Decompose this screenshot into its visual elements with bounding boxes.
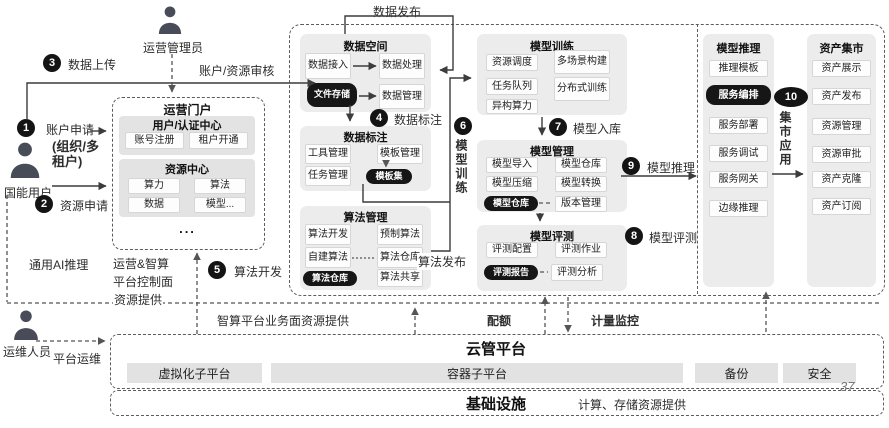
resource-item-compute: 算力: [128, 178, 180, 194]
step-10-label: 集市应用: [777, 111, 794, 175]
step-4-badge: 4: [370, 109, 388, 127]
service-debug-node: 服务调试: [709, 145, 768, 162]
step-1-note-line2: 租户): [52, 151, 82, 170]
platform-ops-label: 平台运维: [53, 350, 101, 367]
admin-person-icon: [156, 3, 184, 37]
backup-module: 备份: [695, 363, 778, 383]
step-7-badge: 7: [549, 118, 567, 136]
label-tool-node: 工具管理: [305, 144, 351, 164]
model-warehouse-node: 模型仓库: [484, 196, 538, 211]
platform-divider: [697, 24, 698, 294]
service-gateway-node: 服务网关: [709, 171, 768, 188]
asset-market-title: 资产集市: [807, 40, 876, 56]
algo-publish-label: 算法发布: [417, 253, 467, 270]
step-8-label: 模型评测: [649, 229, 697, 246]
model-repo-node: 模型仓库: [555, 157, 607, 173]
portal-more-ellipsis: ...: [112, 221, 263, 236]
algo-share-node: 算法共享: [377, 269, 423, 287]
asset-display-node: 资产展示: [812, 60, 871, 77]
eval-report-node: 评测报告: [484, 265, 538, 280]
asset-clone-node: 资产克隆: [812, 171, 871, 188]
infrastructure-note: 计算、存储资源提供: [578, 396, 686, 413]
step-9-badge: 9: [622, 157, 640, 175]
train-queue-node: 任务队列: [486, 78, 538, 95]
asset-publish-node: 资产发布: [812, 88, 871, 105]
eval-job-node: 评测作业: [555, 242, 607, 258]
step-1-badge: 1: [17, 119, 35, 137]
model-infer-title: 模型推理: [703, 40, 774, 56]
resource-item-model: 模型...: [194, 197, 246, 213]
account-review-label: 账户/资源审核: [199, 62, 274, 79]
user-person-icon: [7, 139, 43, 181]
business-plane-label: 智算平台业务面资源提供: [217, 312, 349, 329]
resource-item-data: 数据: [128, 197, 180, 213]
model-convert-node: 模型转换: [555, 176, 607, 192]
asset-resource-mgmt-node: 资源管理: [812, 118, 871, 135]
step-5-badge: 5: [208, 261, 226, 279]
step-4-label: 数据标注: [394, 111, 442, 128]
edge-infer-node: 边缘推理: [709, 200, 768, 217]
auth-item-tenant: 租户开通: [189, 132, 248, 149]
label-template-node: 模板管理: [377, 144, 423, 164]
metering-label: 计量监控: [591, 312, 639, 329]
virtualization-subplatform: 虚拟化子平台: [127, 363, 262, 383]
algo-mgmt-title: 算法管理: [300, 209, 431, 225]
diagram-canvas: 运营门户 用户/认证中心 账号注册 租户开通 资源中心 算力 算法 数据 模型.…: [0, 0, 889, 428]
control-plane-label-line1: 运营&智算: [113, 255, 169, 272]
step-6-label: 模型训练: [453, 139, 470, 201]
data-manage-node: 数据管理: [379, 84, 425, 109]
step-3-label: 数据上传: [68, 56, 116, 73]
data-space-title: 数据空间: [300, 38, 431, 54]
eval-config-node: 评测配置: [486, 242, 538, 258]
train-schedule-node: 资源调度: [486, 54, 538, 71]
model-version-node: 版本管理: [555, 196, 607, 212]
label-task-node: 任务管理: [305, 166, 351, 186]
ops-person-icon: [11, 308, 41, 342]
algo-selfbuilt-node: 自建算法: [305, 247, 351, 268]
algo-prebuilt-node: 预制算法: [377, 224, 423, 245]
control-plane-label-line3: 资源提供: [113, 291, 163, 308]
file-storage-node: 文件存储: [307, 83, 357, 107]
step-2-label: 资源申请: [60, 197, 108, 214]
algo-warehouse-node: 算法仓库: [303, 271, 357, 286]
train-hetero-node: 异构算力: [486, 99, 538, 114]
asset-subscribe-node: 资产订阅: [812, 198, 871, 215]
quota-label: 配额: [487, 312, 511, 329]
auth-item-register: 账号注册: [125, 132, 184, 149]
data-process-node: 数据处理: [379, 53, 425, 79]
model-compress-node: 模型压缩: [486, 176, 538, 192]
general-ai-inference-label: 通用AI推理: [29, 256, 88, 273]
data-publish-label: 数据发布: [373, 3, 421, 20]
model-import-node: 模型导入: [486, 157, 538, 173]
step-9-label: 模型推理: [647, 159, 695, 176]
cloud-platform-title: 云管平台: [110, 338, 882, 359]
service-deploy-node: 服务部署: [709, 117, 768, 134]
service-orchestration-node: 服务编排: [706, 85, 771, 105]
ops-label: 运维人员: [0, 343, 54, 360]
data-label-title: 数据标注: [300, 129, 431, 145]
resource-item-algorithm: 算法: [194, 178, 246, 194]
step-2-badge: 2: [35, 195, 53, 213]
step-3-badge: 3: [43, 54, 61, 72]
step-6-badge: 6: [454, 117, 472, 135]
data-access-node: 数据接入: [305, 53, 351, 79]
train-multiscene-node: 多场景构建: [554, 50, 610, 74]
infrastructure-title: 基础设施: [110, 393, 882, 414]
page-number: 37: [840, 379, 854, 394]
auth-center-title: 用户/认证中心: [119, 117, 255, 133]
template-set-node: 模板集: [366, 169, 412, 184]
admin-label: 运营管理员: [136, 39, 210, 56]
control-plane-label-line2: 平台控制面: [113, 273, 173, 290]
step-7-label: 模型入库: [573, 120, 621, 137]
algo-dev-node: 算法开发: [305, 224, 351, 245]
step-10-badge: 10: [774, 87, 808, 107]
asset-approval-node: 资源审批: [812, 146, 871, 163]
step-5-label: 算法开发: [234, 263, 282, 280]
resource-center-title: 资源中心: [119, 161, 255, 177]
infer-template-node: 推理模板: [709, 60, 768, 77]
step-8-badge: 8: [625, 227, 643, 245]
eval-analysis-node: 评测分析: [551, 264, 603, 281]
train-distributed-node: 分布式训练: [554, 77, 610, 101]
container-subplatform: 容器子平台: [271, 363, 683, 383]
